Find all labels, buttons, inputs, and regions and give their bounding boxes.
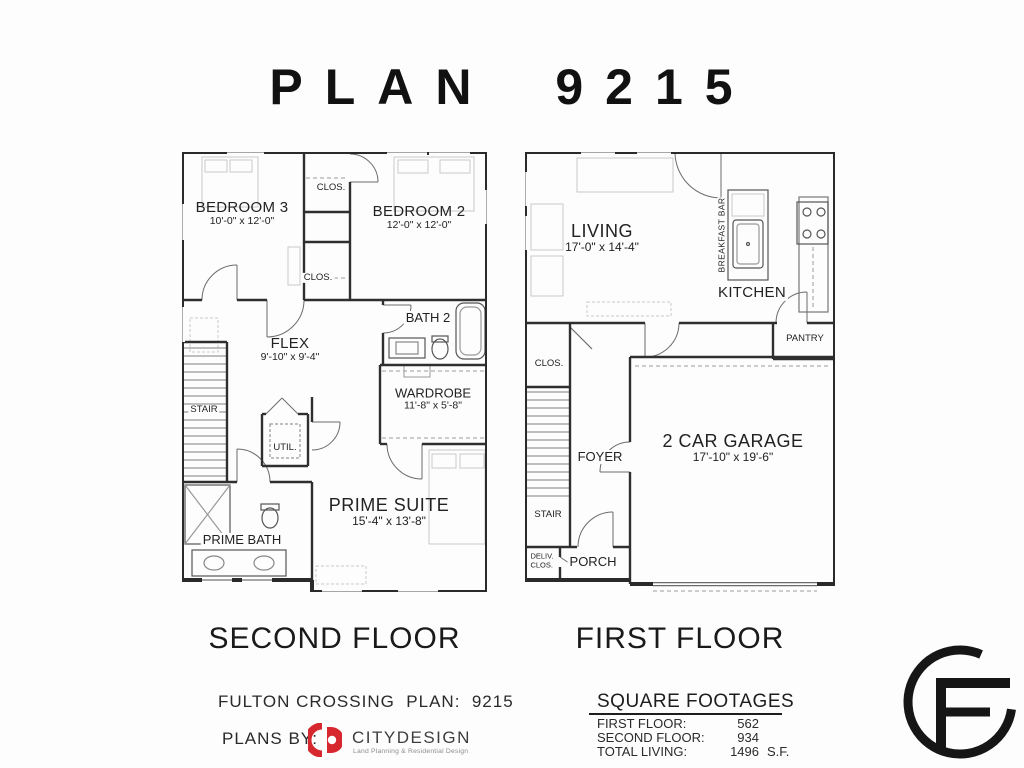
room-label-pantry: PANTRY	[784, 334, 826, 344]
room-label-flex: FLEX 9'-10" x 9'-4"	[261, 336, 320, 364]
square-footages-heading: SQUARE FOOTAGES	[597, 691, 794, 713]
prime-suite-name: PRIME SUITE	[329, 496, 450, 515]
sqft-label-total-living: TOTAL LIVING:	[597, 744, 687, 759]
room-label-util: UTIL.	[271, 443, 298, 453]
sqft-value-first-floor: 562	[697, 716, 759, 731]
second-floor-plan: BEDROOM 3 10'-0" x 12'-0" CLOS. BEDROOM …	[182, 152, 487, 592]
sqft-value-second-floor: 934	[697, 730, 759, 745]
sqft-label-first-floor: FIRST FLOOR:	[597, 716, 686, 731]
room-label-bedroom2: BEDROOM 2 12'-0" x 12'-0"	[373, 204, 466, 232]
prime-suite-dims: 15'-4" x 13'-8"	[329, 515, 450, 528]
room-label-closet-1f: CLOS.	[533, 359, 566, 369]
designer-tagline: Land Planning & Residential Design	[353, 748, 468, 755]
first-floor-plan: LIVING 17'-0" x 14'-4" BREAKFAST BAR KIT…	[525, 152, 835, 592]
room-label-bath2: BATH 2	[404, 311, 453, 325]
first-floor-caption: FIRST FLOOR	[525, 622, 835, 656]
deliv-clos-line2: CLOS.	[530, 561, 553, 570]
garage-name: 2 CAR GARAGE	[662, 432, 803, 451]
living-name: LIVING	[565, 222, 639, 241]
page-title: PLAN 9215	[0, 58, 1024, 116]
wardrobe-name: WARDROBE	[395, 386, 471, 400]
project-line: FULTON CROSSING PLAN: 9215	[218, 692, 514, 712]
flex-name: FLEX	[261, 336, 320, 352]
room-label-porch: PORCH	[568, 555, 619, 569]
floor-plan-sheet: PLAN 9215	[0, 0, 1024, 768]
room-label-kitchen: KITCHEN	[716, 285, 788, 301]
first-floor-plan-drawing	[525, 152, 835, 592]
bedroom2-name: BEDROOM 2	[373, 204, 466, 220]
room-label-deliv-clos: DELIV. CLOS.	[528, 552, 555, 569]
room-label-wardrobe: WARDROBE 11'-8" x 5'-8"	[395, 386, 471, 411]
room-label-prime-suite: PRIME SUITE 15'-4" x 13'-8"	[329, 496, 450, 528]
designer-name: CITYDESIGN	[352, 728, 471, 748]
room-label-living: LIVING 17'-0" x 14'-4"	[565, 222, 639, 254]
plans-by-label: PLANS BY:	[222, 729, 318, 749]
room-label-closet-top: CLOS.	[315, 183, 348, 193]
room-label-breakfast-bar: BREAKFAST BAR	[717, 198, 726, 273]
bedroom3-name: BEDROOM 3	[196, 200, 289, 216]
room-label-foyer: FOYER	[576, 450, 625, 464]
room-label-prime-bath: PRIME BATH	[201, 533, 284, 547]
sqft-row-first-floor: FIRST FLOOR: 562	[597, 716, 797, 731]
second-floor-caption: SECOND FLOOR	[182, 622, 487, 656]
sqft-row-total-living: TOTAL LIVING: 1496 S.F.	[597, 744, 797, 759]
flex-dims: 9'-10" x 9'-4"	[261, 352, 320, 363]
room-label-garage: 2 CAR GARAGE 17'-10" x 19'-6"	[662, 432, 803, 464]
sqft-row-second-floor: SECOND FLOOR: 934	[597, 730, 797, 745]
room-label-stair-2f: STAIR	[188, 405, 219, 415]
sqft-unit-total-living: S.F.	[767, 744, 789, 759]
room-label-stair-1f: STAIR	[532, 510, 563, 520]
bedroom3-dims: 10'-0" x 12'-0"	[196, 216, 289, 227]
living-dims: 17'-0" x 14'-4"	[565, 241, 639, 254]
garage-dims: 17'-10" x 19'-6"	[662, 451, 803, 464]
bedroom2-dims: 12'-0" x 12'-0"	[373, 220, 466, 231]
square-footages-rule	[589, 713, 782, 715]
fulton-crossing-monogram-icon	[898, 638, 1024, 768]
citydesign-logo-icon	[308, 723, 342, 762]
room-label-bedroom3: BEDROOM 3 10'-0" x 12'-0"	[196, 200, 289, 228]
wardrobe-dims: 11'-8" x 5'-8"	[395, 400, 471, 411]
room-label-closet-mid: CLOS.	[302, 273, 335, 283]
sqft-value-total-living: 1496	[697, 744, 759, 759]
sqft-label-second-floor: SECOND FLOOR:	[597, 730, 705, 745]
